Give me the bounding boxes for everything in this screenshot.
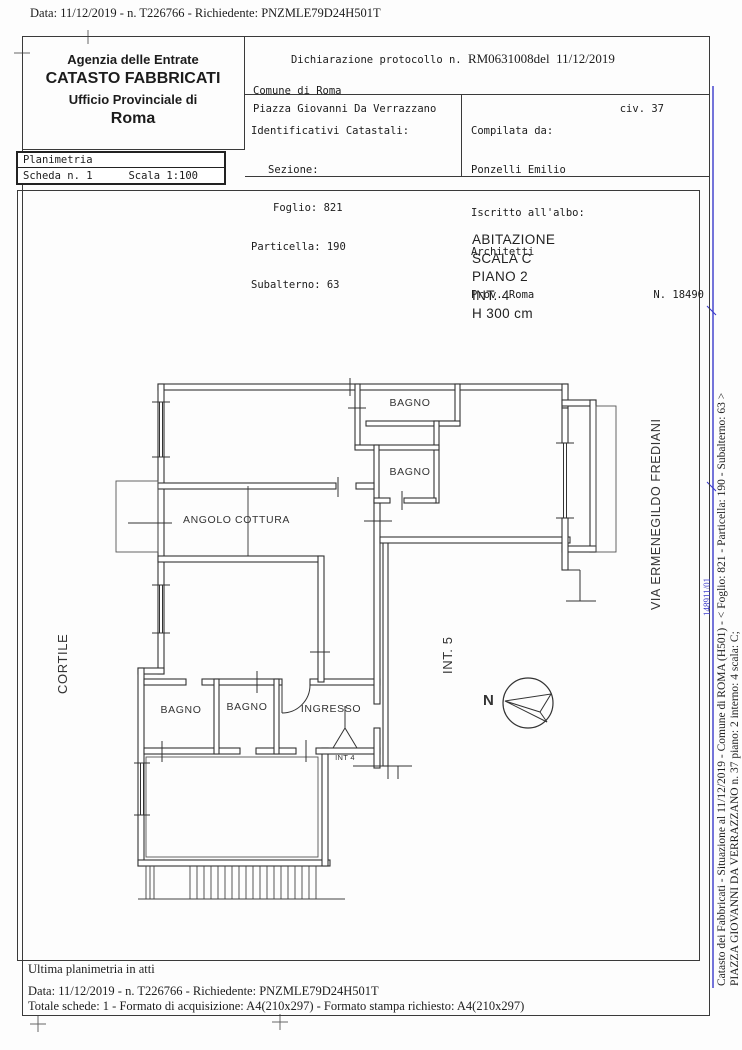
identifiers-title: Identificativi Catastali:: [251, 124, 467, 139]
top-data-line: Data: 11/12/2019 - n. T226766 - Richiede…: [30, 6, 381, 21]
room-label-angolo-cottura: ANGOLO COTTURA: [183, 514, 303, 526]
unit-info-line: PIANO 2: [472, 268, 555, 287]
room-label-bagno-mid: BAGNO: [384, 466, 436, 478]
compiler-name: Ponzelli Emilio: [471, 163, 714, 178]
label-cortile: CORTILE: [55, 634, 70, 694]
margin-address-line: PIAZZA GIOVANNI DA VERRAZZANO n. 37 pian…: [729, 631, 741, 986]
albo-label: Iscritto all'albo:: [471, 206, 714, 221]
agency-header: Agenzia delle Entrate CATASTO FABBRICATI…: [22, 36, 245, 150]
foglio-value: Foglio: 821: [251, 201, 467, 216]
label-int5: INT. 5: [440, 636, 455, 674]
planimetria-box: Planimetria Scheda n. 1 Scala 1:100: [16, 151, 226, 185]
unit-info-line: INT. 4: [472, 287, 555, 306]
scheda-number: Scheda n. 1: [23, 170, 93, 182]
room-label-bagno-low-mid: BAGNO: [221, 701, 273, 713]
unit-info-line: H 300 cm: [472, 305, 555, 324]
room-label-bagno-top: BAGNO: [384, 397, 436, 409]
footer-note: Ultima planimetria in atti: [28, 962, 155, 977]
protocol-number: RM0631008del: [468, 51, 550, 66]
unit-info-line: ABITAZIONE: [472, 231, 555, 250]
agency-line1: Agenzia delle Entrate: [22, 52, 244, 67]
footer-format-line: Totale schede: 1 - Formato di acquisizio…: [28, 999, 524, 1014]
margin-catasto-line: Catasto dei Fabbricati - Situazione al 1…: [716, 393, 728, 986]
label-int4-entrance: INT 4: [330, 753, 360, 762]
compass-north-label: N: [483, 692, 494, 709]
label-street: VIA ERMENEGILDO FREDIANI: [649, 418, 663, 610]
identifiers-box: Identificativi Catastali: Sezione: Fogli…: [245, 95, 710, 177]
agency-line3: Ufficio Provinciale di: [22, 92, 244, 107]
protocol-prefix: Dichiarazione protocollo n.: [291, 54, 468, 66]
agency-line2: CATASTO FABBRICATI: [22, 70, 244, 88]
particella-value: Particella: 190: [251, 240, 467, 255]
scale-value: Scala 1:100: [128, 170, 198, 182]
agency-line4: Roma: [22, 110, 244, 128]
unit-info-block: ABITAZIONE SCALA C PIANO 2 INT. 4 H 300 …: [472, 231, 555, 324]
cadastral-sheet: Data: 11/12/2019 - n. T226766 - Richiede…: [0, 0, 742, 1050]
unit-info-line: SCALA C: [472, 250, 555, 269]
room-label-bagno-low-left: BAGNO: [155, 704, 207, 716]
planimetria-title: Planimetria: [18, 153, 224, 168]
sezione-label: Sezione:: [251, 163, 467, 178]
room-label-ingresso: INGRESSO: [300, 703, 362, 715]
blue-code-stamp: 148911/01: [702, 578, 712, 616]
albo-number: N. 18490: [653, 288, 704, 303]
protocol-date: 11/12/2019: [556, 51, 615, 66]
footer-data-line: Data: 11/12/2019 - n. T226766 - Richiede…: [28, 984, 379, 999]
subalterno-value: Subalterno: 63: [251, 278, 467, 293]
declaration-box: Dichiarazione protocollo n. RM0631008del…: [245, 36, 710, 95]
compilata-label: Compilata da:: [471, 124, 714, 139]
